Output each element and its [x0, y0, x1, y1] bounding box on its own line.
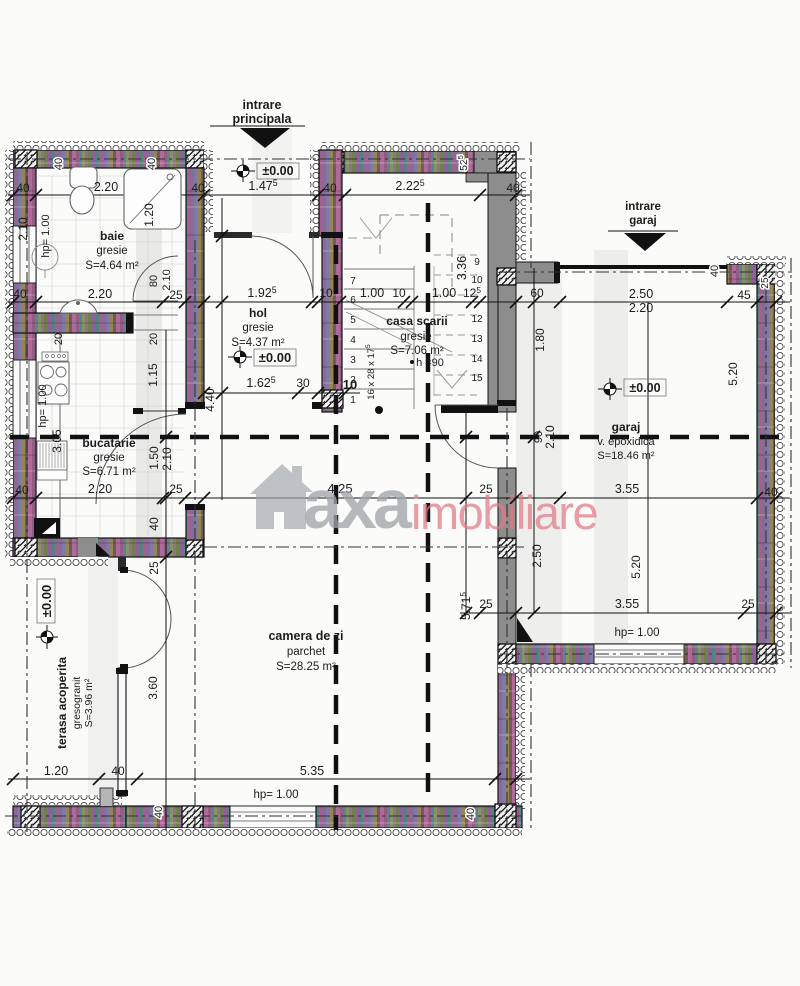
svg-text:20: 20 [53, 333, 65, 345]
svg-text:40: 40 [13, 287, 27, 301]
svg-text:40: 40 [191, 181, 205, 195]
svg-text:hp= 1.00: hp= 1.00 [253, 789, 298, 801]
svg-text:1.00: 1.00 [432, 286, 456, 300]
svg-text:2.20: 2.20 [94, 180, 118, 194]
svg-text:60: 60 [530, 286, 544, 300]
svg-text:camera de zi: camera de zi [268, 629, 343, 643]
svg-text:S=7.06 m²: S=7.06 m² [390, 345, 444, 357]
svg-text:principala: principala [232, 112, 292, 126]
svg-text:S=3.96 m²: S=3.96 m² [83, 678, 95, 727]
svg-text:imobiliare: imobiliare [411, 486, 597, 539]
svg-text:hp= 1.00: hp= 1.00 [37, 384, 49, 427]
svg-text:3.05: 3.05 [50, 429, 64, 453]
svg-text:baie: baie [100, 229, 124, 243]
svg-text:40: 40 [465, 808, 477, 820]
svg-text:25: 25 [169, 482, 183, 496]
svg-text:12: 12 [471, 314, 483, 325]
svg-text:±0.00: ±0.00 [39, 585, 54, 617]
svg-text:5.20: 5.20 [629, 555, 643, 579]
svg-text:10: 10 [319, 286, 333, 300]
svg-text:garaj: garaj [629, 215, 657, 227]
svg-text:gresie: gresie [96, 245, 127, 257]
svg-text:40: 40 [153, 806, 165, 818]
svg-text:gresogranit: gresogranit [71, 677, 83, 730]
svg-text:40: 40 [506, 181, 520, 195]
svg-text:10: 10 [343, 377, 357, 392]
svg-text:h =90: h =90 [416, 357, 444, 369]
svg-text:1.80: 1.80 [533, 328, 547, 352]
svg-text:16 x 28 x 175: 16 x 28 x 175 [365, 344, 377, 400]
svg-text:S=6.71 m²: S=6.71 m² [82, 466, 136, 478]
svg-text:25: 25 [479, 597, 493, 611]
svg-text:25: 25 [147, 561, 161, 575]
svg-text:45: 45 [737, 288, 751, 302]
svg-text:S=4.64 m²: S=4.64 m² [85, 260, 139, 272]
svg-text:1.15: 1.15 [146, 363, 160, 387]
svg-text:30: 30 [296, 376, 310, 390]
svg-text:40: 40 [146, 158, 158, 170]
svg-text:1.20: 1.20 [142, 203, 156, 227]
svg-text:±0.00: ±0.00 [262, 164, 293, 178]
svg-text:2.20: 2.20 [629, 301, 653, 315]
svg-text:80: 80 [148, 275, 160, 287]
svg-text:25: 25 [760, 277, 771, 289]
svg-text:3.36: 3.36 [455, 256, 469, 280]
svg-text:casa scarii: casa scarii [386, 314, 447, 328]
svg-text:40: 40 [53, 158, 65, 170]
svg-text:1: 1 [350, 395, 356, 406]
svg-text:25: 25 [741, 597, 755, 611]
svg-text:9: 9 [474, 257, 480, 268]
svg-text:40: 40 [15, 483, 29, 497]
svg-text:15: 15 [471, 373, 483, 384]
svg-text:2.10: 2.10 [16, 217, 30, 241]
svg-text:2.50: 2.50 [629, 287, 653, 301]
svg-text:2.50: 2.50 [530, 544, 544, 568]
svg-text:40: 40 [709, 265, 721, 277]
svg-text:bucatarie: bucatarie [82, 436, 136, 450]
svg-text:3.55: 3.55 [615, 597, 639, 611]
svg-text:4.40: 4.40 [203, 388, 217, 412]
svg-text:7: 7 [350, 276, 356, 287]
svg-text:garaj: garaj [612, 420, 641, 434]
svg-text:3.55: 3.55 [615, 482, 639, 496]
svg-text:gresie: gresie [93, 452, 124, 464]
svg-text:axa: axa [303, 465, 413, 543]
svg-text:1.20: 1.20 [44, 764, 68, 778]
svg-text:hol: hol [249, 306, 267, 320]
svg-text:40: 40 [16, 181, 30, 195]
svg-text:40: 40 [111, 764, 125, 778]
svg-text:1.50: 1.50 [147, 446, 161, 470]
svg-text:±0.00: ±0.00 [629, 381, 660, 395]
svg-text:3: 3 [350, 355, 356, 366]
svg-text:2.20: 2.20 [88, 482, 112, 496]
svg-text:gresie: gresie [242, 322, 273, 334]
svg-text:hp= 1.00: hp= 1.00 [40, 214, 52, 257]
svg-text:20: 20 [148, 333, 160, 345]
svg-text:S=28.25 m²: S=28.25 m² [276, 661, 336, 673]
svg-text:2.10: 2.10 [543, 425, 557, 449]
svg-text:S=18.46 m²: S=18.46 m² [597, 450, 655, 462]
svg-text:5.20: 5.20 [726, 362, 740, 386]
svg-text:S=4.37 m²: S=4.37 m² [231, 337, 285, 349]
svg-text:3.60: 3.60 [146, 676, 160, 700]
svg-text:40: 40 [764, 485, 778, 499]
svg-text:parchet: parchet [287, 646, 326, 658]
svg-text:terasa acoperita: terasa acoperita [55, 657, 69, 749]
svg-text:10: 10 [392, 286, 406, 300]
svg-text:hp= 1.00: hp= 1.00 [614, 627, 659, 639]
svg-text:5.35: 5.35 [300, 764, 324, 778]
svg-text:±0.00: ±0.00 [259, 350, 291, 365]
svg-text:40: 40 [147, 517, 161, 531]
svg-text:gresie: gresie [400, 331, 431, 343]
svg-text:13: 13 [471, 334, 483, 345]
svg-text:intrare: intrare [243, 98, 282, 112]
svg-text:4: 4 [350, 335, 356, 346]
svg-text:40: 40 [323, 181, 337, 195]
svg-text:2.20: 2.20 [88, 287, 112, 301]
svg-text:2.10: 2.10 [160, 447, 174, 471]
svg-text:v. epoxidica: v. epoxidica [597, 436, 655, 448]
svg-text:intrare: intrare [625, 201, 661, 213]
svg-text:14: 14 [471, 354, 483, 365]
svg-text:1.00: 1.00 [360, 286, 384, 300]
svg-text:2.10: 2.10 [161, 269, 173, 290]
